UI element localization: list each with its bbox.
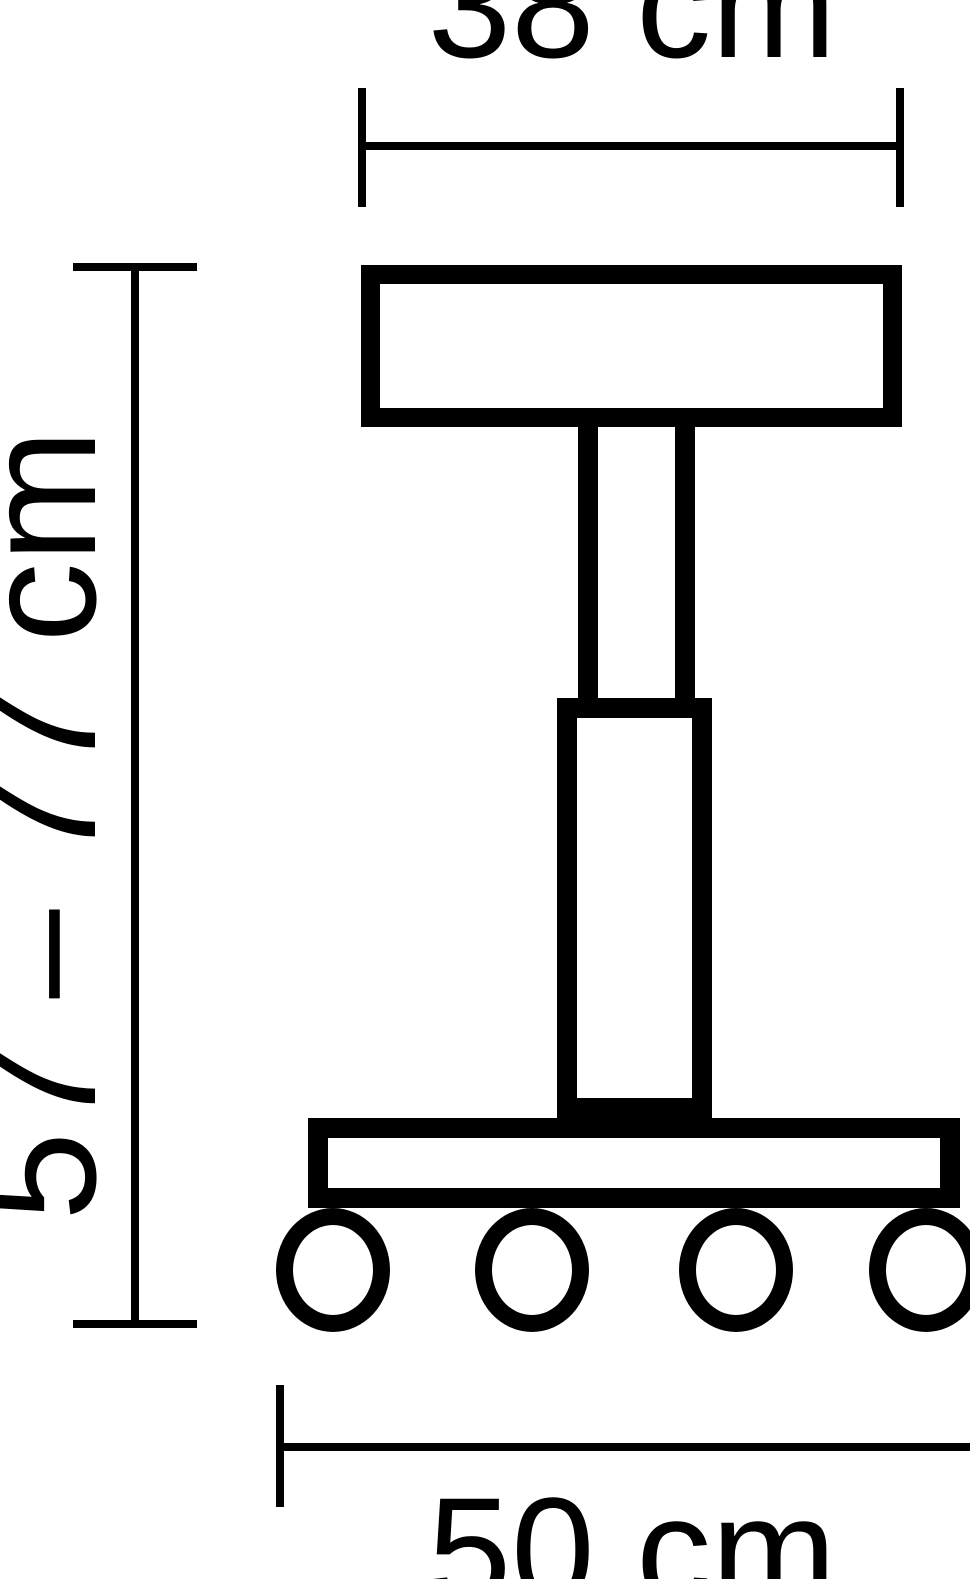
left-dimension-tick-bottom [73, 1320, 197, 1328]
bottom-dimension-line [280, 1443, 970, 1451]
caster-wheel [475, 1208, 589, 1332]
stool-gas-lift-column [557, 698, 712, 1118]
left-dimension-label: 57 – 77 cm [0, 429, 120, 1221]
caster-wheel [679, 1208, 793, 1332]
top-dimension-label: 38 cm [362, 0, 902, 80]
stool-stem-right-line [675, 425, 695, 705]
top-dimension-tick-right [896, 88, 904, 207]
dimension-diagram: 38 cm 57 – 77 cm 50 cm [0, 0, 970, 1579]
stool-seat [361, 265, 902, 427]
left-dimension-line [131, 267, 139, 1328]
top-dimension-line [362, 142, 902, 150]
caster-wheel [276, 1208, 390, 1332]
bottom-dimension-label: 50 cm [362, 1475, 902, 1579]
caster-wheel [869, 1208, 970, 1332]
stool-stem-left-line [578, 425, 598, 705]
stool-base-plate [308, 1118, 960, 1208]
